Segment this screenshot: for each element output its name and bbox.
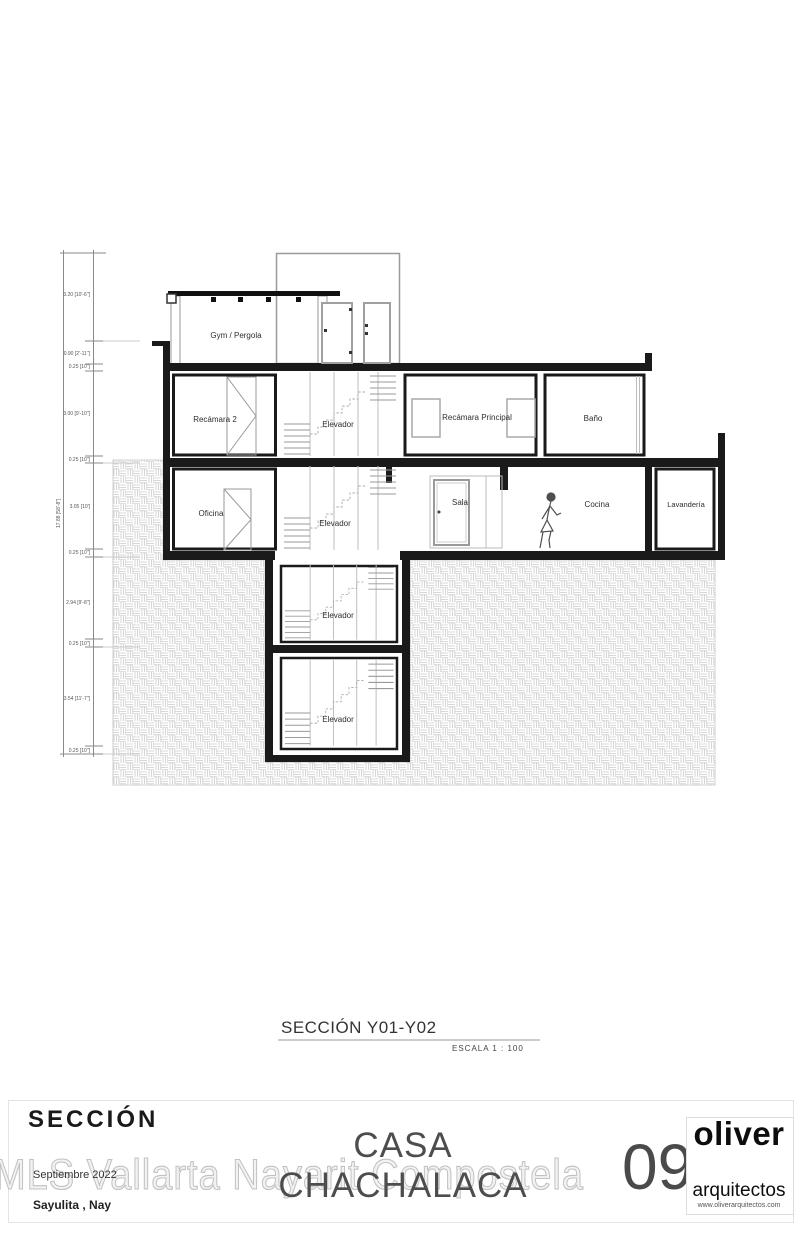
room-label-sala: Sala (430, 498, 490, 508)
dim-label-0: 3.20 [10'-6"] (56, 292, 90, 298)
drawing-sheet: Gym / Pergola Recámara 2 Elevador Recáma… (0, 0, 800, 1236)
scale-note: ESCALA 1 : 100 (452, 1044, 524, 1053)
dim-label-3: 3.00 [9'-10"] (56, 411, 90, 417)
dim-label-9: 3.54 [11'-7"] (56, 696, 90, 702)
dim-label-8: 0.25 [10"] (56, 641, 90, 647)
room-label-gym-pergola: Gym / Pergola (191, 331, 281, 341)
dim-label-4: 0.25 [10"] (56, 457, 90, 463)
sheet-number: 09 (622, 1130, 693, 1204)
firm-name: oliver (686, 1115, 792, 1153)
sheet-type-label: SECCIÓN (28, 1106, 158, 1134)
sheet-date: Septiembre 2022 (33, 1169, 117, 1181)
section-drawing (0, 0, 800, 1236)
firm-subtitle: arquitectos (686, 1180, 792, 1202)
room-label-recamara-principal: Recámara Principal (442, 413, 512, 423)
sheet-location: Sayulita , Nay (33, 1198, 111, 1212)
room-label-oficina: Oficina (176, 509, 246, 519)
section-title: SECCIÓN Y01-Y02 (281, 1018, 437, 1038)
tower-door-left (322, 303, 352, 363)
tower-door-right (364, 303, 390, 363)
room-label-elevador-b1: Elevador (303, 611, 373, 621)
room-label-lavanderia: Lavandería (653, 500, 719, 509)
room-label-recamara-2: Recámara 2 (175, 415, 255, 425)
room-label-cocina: Cocina (562, 500, 632, 510)
room-label-elevador-b2: Elevador (303, 715, 373, 725)
dim-label-total: 17.88 [58'-8"] (56, 499, 62, 528)
dim-label-6: 0.25 [10"] (56, 550, 90, 556)
dim-label-10: 0.25 [10"] (56, 748, 90, 754)
dim-label-2: 0.25 [10"] (56, 364, 90, 370)
dim-label-7: 2.94 [9'-8"] (56, 600, 90, 606)
room-label-bano: Baño (558, 414, 628, 424)
firm-website: www.oliverarquitectos.com (686, 1202, 792, 1209)
room-label-elevador-n1: Elevador (303, 420, 373, 430)
project-title: CASA CHACHALACA (238, 1126, 568, 1206)
sala-glass-door (430, 476, 502, 548)
dim-label-1: 0.90 [2'-11"] (56, 351, 90, 357)
room-label-elevador-n2: Elevador (300, 519, 370, 529)
person-figure (540, 493, 561, 548)
